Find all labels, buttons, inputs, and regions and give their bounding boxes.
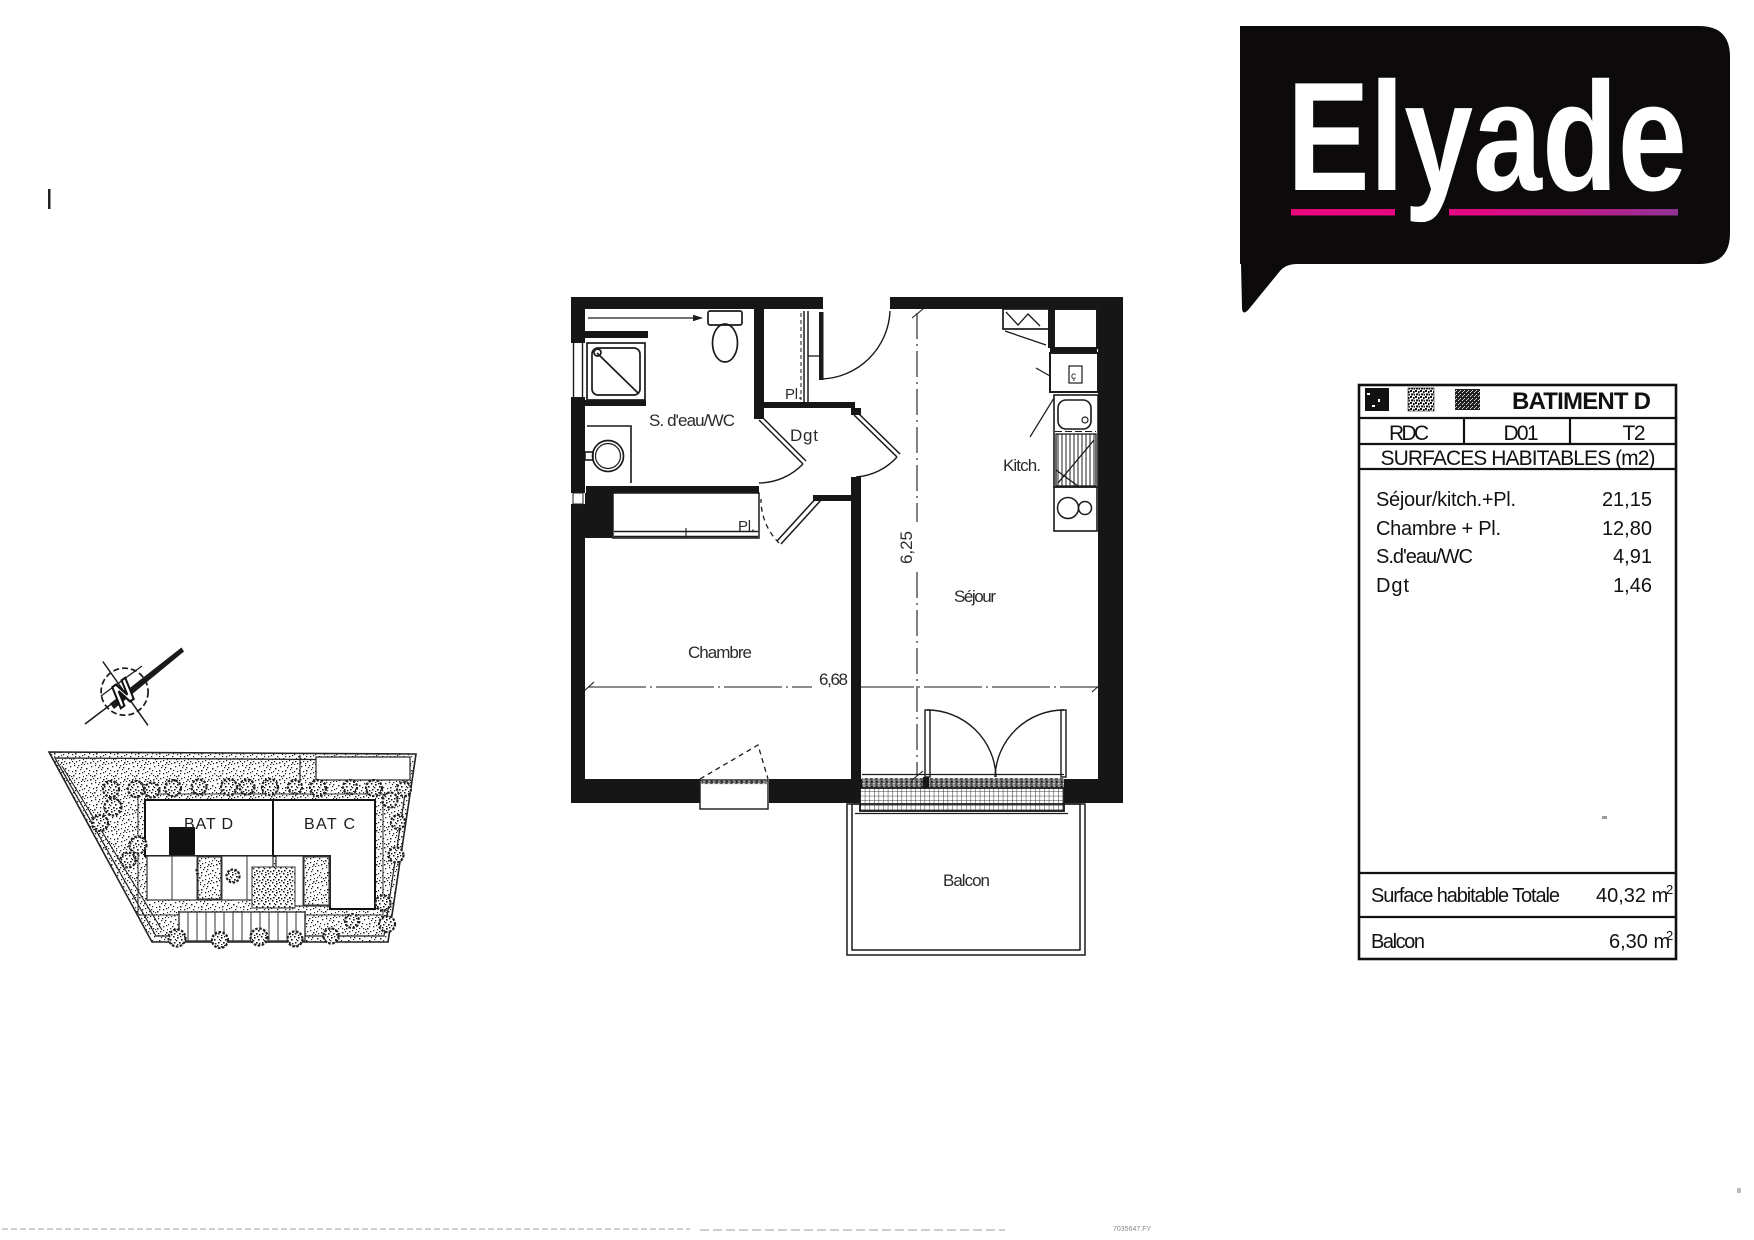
svg-text:RDC: RDC	[1389, 422, 1429, 445]
svg-text:D01: D01	[1504, 422, 1539, 445]
svg-text:Chambre + Pl.: Chambre + Pl.	[1376, 518, 1501, 540]
svg-text:6,30 m: 6,30 m	[1609, 931, 1670, 953]
svg-text:Elyade: Elyade	[1287, 50, 1687, 223]
svg-text:Balcon: Balcon	[1371, 931, 1425, 953]
svg-text:Chambre: Chambre	[688, 643, 752, 662]
svg-text:BATIMENT D: BATIMENT D	[1512, 388, 1651, 415]
svg-text:2: 2	[1666, 928, 1673, 943]
svg-text:1,46: 1,46	[1613, 575, 1652, 597]
svg-text:Dgt: Dgt	[1376, 575, 1409, 597]
svg-text:40,32 m: 40,32 m	[1596, 885, 1668, 907]
svg-text:Séjour/kitch.+Pl.: Séjour/kitch.+Pl.	[1376, 489, 1516, 511]
svg-text:Surface habitable Totale: Surface habitable Totale	[1371, 885, 1560, 907]
svg-text:ç: ç	[1071, 371, 1076, 382]
svg-text:12,80: 12,80	[1602, 518, 1652, 540]
svg-text:Dgt: Dgt	[790, 426, 818, 445]
svg-text:Séjour: Séjour	[954, 587, 996, 606]
svg-text:BAT D: BAT D	[184, 816, 233, 833]
svg-text:6,25: 6,25	[897, 531, 916, 564]
svg-text:Pl.: Pl.	[785, 386, 802, 403]
svg-text:2: 2	[1666, 882, 1673, 897]
svg-text:Pl.: Pl.	[738, 518, 755, 535]
svg-text:7035647.FY: 7035647.FY	[1113, 1226, 1151, 1233]
svg-text:S. d'eau/WC: S. d'eau/WC	[649, 411, 735, 430]
svg-text:21,15: 21,15	[1602, 489, 1652, 511]
svg-text:BAT C: BAT C	[304, 816, 355, 833]
svg-text:SURFACES HABITABLES (m2): SURFACES HABITABLES (m2)	[1381, 447, 1656, 470]
svg-text:Kitch.: Kitch.	[1003, 456, 1041, 475]
svg-text:6,68: 6,68	[819, 670, 848, 689]
svg-text:S.d'eau/WC: S.d'eau/WC	[1376, 546, 1473, 568]
svg-text:Balcon: Balcon	[943, 871, 990, 890]
svg-text:4,91: 4,91	[1613, 546, 1652, 568]
svg-text:T2: T2	[1623, 422, 1646, 445]
